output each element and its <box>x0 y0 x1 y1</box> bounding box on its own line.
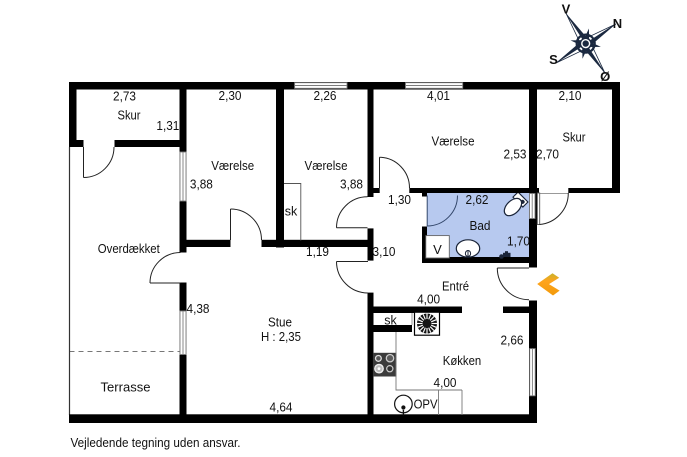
svg-text:S: S <box>549 52 558 67</box>
svg-text:4,01: 4,01 <box>427 88 450 103</box>
svg-text:1,31: 1,31 <box>156 118 179 133</box>
svg-text:Entré: Entré <box>442 279 469 294</box>
svg-text:sk: sk <box>285 204 298 219</box>
svg-text:Stue: Stue <box>268 315 292 330</box>
svg-text:2,66: 2,66 <box>501 333 524 348</box>
svg-text:3,88: 3,88 <box>340 177 363 192</box>
svg-text:2,30: 2,30 <box>219 88 242 103</box>
svg-text:Vejledende tegning uden ansvar: Vejledende tegning uden ansvar. <box>71 435 241 450</box>
svg-text:Ø: Ø <box>600 69 610 84</box>
svg-text:N: N <box>613 16 622 31</box>
svg-text:Skur: Skur <box>563 130 587 145</box>
svg-text:2,70: 2,70 <box>536 147 559 162</box>
svg-text:4,38: 4,38 <box>187 301 210 316</box>
svg-text:H : 2,35: H : 2,35 <box>261 329 301 344</box>
svg-text:2,10: 2,10 <box>559 88 582 103</box>
svg-text:Overdækket: Overdækket <box>98 241 160 256</box>
svg-text:2,73: 2,73 <box>113 88 136 103</box>
svg-text:3,88: 3,88 <box>190 177 213 192</box>
svg-text:3,10: 3,10 <box>373 244 396 259</box>
svg-text:Værelse: Værelse <box>432 134 475 149</box>
svg-text:2,62: 2,62 <box>466 192 489 207</box>
svg-text:4,00: 4,00 <box>434 375 457 390</box>
svg-text:2,26: 2,26 <box>314 88 337 103</box>
svg-text:4,00: 4,00 <box>417 291 440 306</box>
svg-text:1,70: 1,70 <box>507 234 530 249</box>
svg-text:OPV: OPV <box>414 397 438 412</box>
svg-text:1,19: 1,19 <box>306 244 329 259</box>
svg-text:Terrasse: Terrasse <box>101 380 151 395</box>
svg-text:Værelse: Værelse <box>211 158 254 173</box>
svg-text:Skur: Skur <box>118 108 142 123</box>
svg-text:1,30: 1,30 <box>388 192 411 207</box>
svg-text:Værelse: Værelse <box>305 158 348 173</box>
svg-text:sk: sk <box>384 313 397 328</box>
svg-text:Bad: Bad <box>470 218 491 233</box>
svg-text:4,64: 4,64 <box>270 400 293 415</box>
svg-text:V: V <box>433 242 442 257</box>
svg-text:Køkken: Køkken <box>443 353 482 368</box>
svg-text:V: V <box>562 2 571 17</box>
svg-text:2,53: 2,53 <box>504 147 527 162</box>
